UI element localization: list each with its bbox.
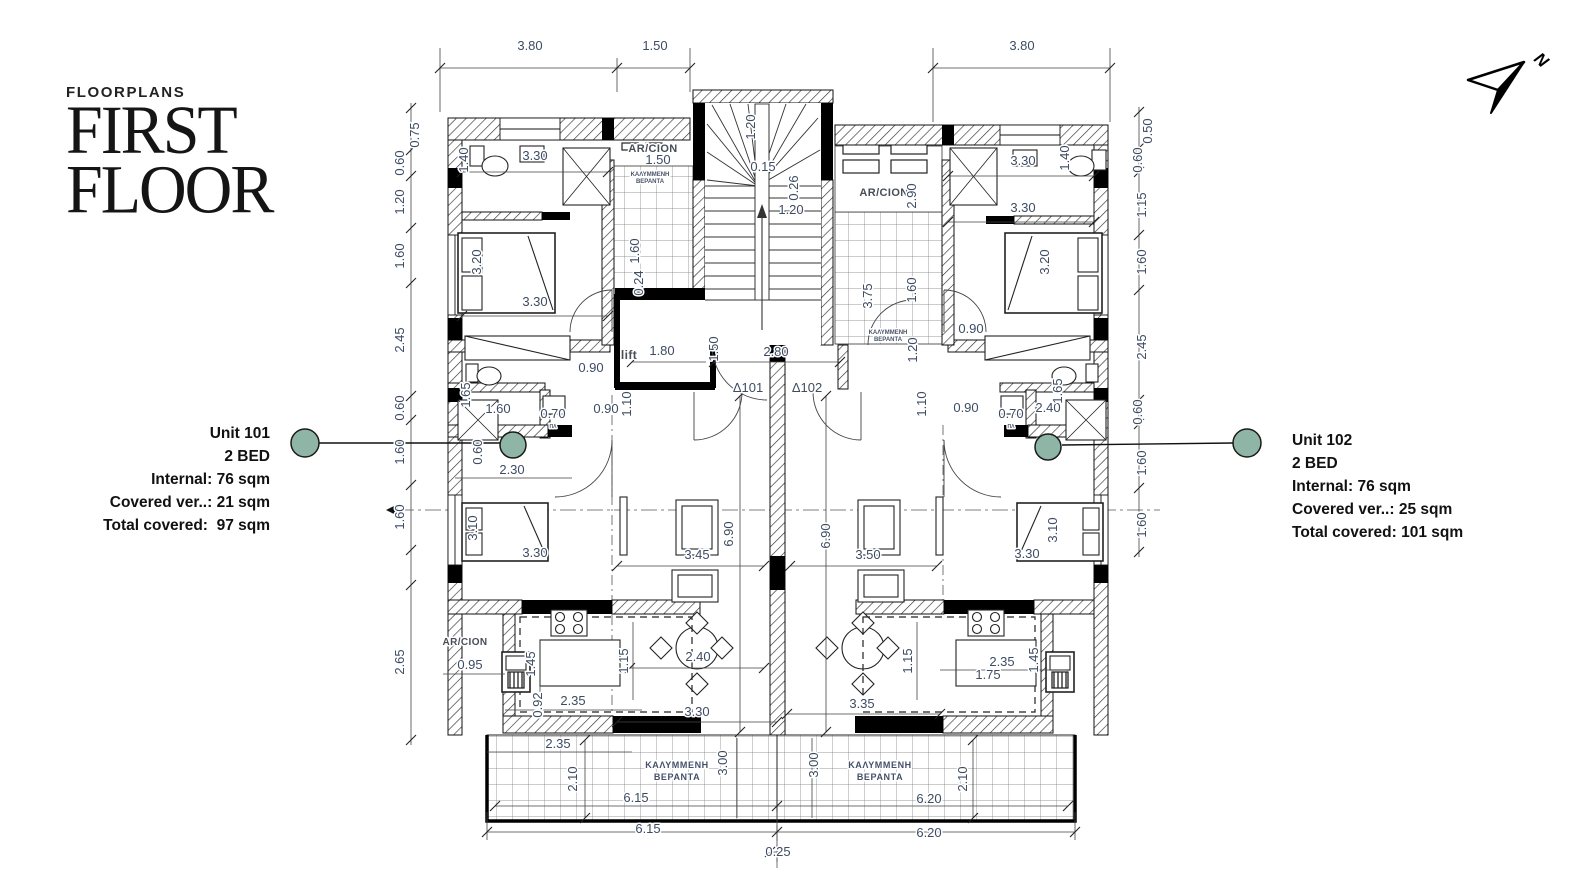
dimension-label: 3.35 (849, 696, 874, 711)
dimension-label: 1.60 (392, 243, 407, 268)
unit-internal: Internal: 76 sqm (20, 468, 270, 491)
dimension-label: 6.90 (818, 523, 833, 548)
unit-101-plan-marker (500, 432, 526, 458)
unit-internal: Internal: 76 sqm (1292, 475, 1552, 498)
room-label: ΒΕΡΑΝΤΑ (874, 337, 903, 343)
room-label: ΚΑΛΥΜΜΕΝΗ (869, 330, 908, 336)
dimension-label: 3.20 (469, 249, 484, 274)
dimension-label: 6.20 (916, 791, 941, 806)
dimension-label: 6.90 (721, 521, 736, 546)
dimension-label: 1.60 (1134, 249, 1149, 274)
dimension-label: 1.20 (778, 202, 803, 217)
dimension-label: 1.20 (743, 114, 758, 139)
dimension-label: 0.60 (470, 439, 485, 464)
dimension-label: 0.90 (578, 360, 603, 375)
page-title: FIRST FLOOR (66, 101, 272, 220)
dimension-label: 0.92 (530, 692, 545, 717)
dimension-label: 3.80 (517, 38, 542, 53)
stairs (705, 103, 821, 345)
dimension-label: 6.15 (623, 790, 648, 805)
dimension-label: 1.60 (904, 277, 919, 302)
dimension-label: 2.10 (565, 766, 580, 791)
dimension-label: 1.45 (1026, 647, 1041, 672)
dimension-label: 3.10 (1045, 517, 1060, 542)
dimension-label: 0.95 (457, 657, 482, 672)
dimension-label: 1.10 (914, 391, 929, 416)
dimension-label: 3.30 (684, 704, 709, 719)
dimension-label: 3.30 (1010, 153, 1035, 168)
dimension-label: 1.50 (645, 152, 670, 167)
dimension-label: 2.10 (955, 766, 970, 791)
room-label: AR/CION (442, 637, 487, 648)
dimension-label: 0.60 (392, 395, 407, 420)
unit-101-marker (291, 429, 319, 457)
dimension-label: 1.15 (900, 648, 915, 673)
dimension-label: 1.10 (619, 391, 634, 416)
dimension-label: 1.60 (392, 504, 407, 529)
room-label: ΚΑΛΥΜΜΕΝΗ (631, 172, 670, 178)
unit-102-plan-marker (1035, 434, 1061, 460)
dimension-label: 0.70 (998, 406, 1023, 421)
room-label: ΒΕΡΑΝΤΑ (857, 772, 903, 782)
dimension-label: 0.90 (958, 321, 983, 336)
dimension-label: 3.30 (522, 148, 547, 163)
dimension-label: 1.60 (1134, 512, 1149, 537)
dimension-label: 0.26 (786, 175, 801, 200)
dimension-label: 0.50 (1140, 118, 1155, 143)
dimension-label: 2.45 (392, 327, 407, 352)
room-label: AR/CION (859, 187, 908, 199)
dimension-label: 0.60 (1130, 399, 1145, 424)
dimension-label: 1.20 (392, 189, 407, 214)
room-label: ΒΕΡΑΝΤΑ (654, 772, 700, 782)
unit-102-card: Unit 102 2 BED Internal: 76 sqm Covered … (1292, 429, 1552, 544)
bed (1005, 233, 1102, 313)
dimension-label: 1.40 (1057, 145, 1072, 170)
dimension-label: 0.75 (407, 122, 422, 147)
dimension-label: 3.30 (1014, 546, 1039, 561)
dimension-label: 2.65 (392, 649, 407, 674)
dimension-label: 1.60 (627, 238, 642, 263)
dimension-label: 1.65 (458, 382, 473, 407)
dimension-label: 1.20 (905, 337, 920, 362)
room-label: ΒΕΡΑΝΤΑ (636, 179, 665, 185)
unit-101-card: Unit 101 2 BED Internal: 76 sqm Covered … (20, 422, 270, 537)
dimension-label: 6.20 (916, 825, 941, 840)
dimension-label: 1.75 (975, 667, 1000, 682)
unit-total: Total covered: 97 sqm (20, 514, 270, 537)
dimension-label: 1.40 (456, 147, 471, 172)
dimension-label: 2.45 (1134, 334, 1149, 359)
unit-beds: 2 BED (1292, 452, 1552, 475)
dimension-label: 2.40 (685, 649, 710, 664)
dimension-label: 1.15 (616, 648, 631, 673)
dimension-label: 2.30 (499, 462, 524, 477)
dimension-label: 1.15 (1134, 192, 1149, 217)
unit-covered: Covered ver..: 25 sqm (1292, 498, 1552, 521)
north-label: N (1530, 49, 1552, 72)
north-arrow-icon: N (1468, 49, 1553, 113)
room-label: ΠΛ (1008, 424, 1016, 430)
dimension-label: 2.90 (904, 183, 919, 208)
dimension-label: 3.10 (465, 515, 480, 540)
dimension-label: 1.60 (392, 439, 407, 464)
dimension-label: 3.80 (1009, 38, 1034, 53)
dimension-label: 3.30 (522, 545, 547, 560)
dimension-label: 1.60 (1134, 450, 1149, 475)
dimension-label: 2.80 (763, 344, 788, 359)
kitchen (502, 610, 1074, 712)
page-header: FLOORPLANS FIRST FLOOR (66, 84, 272, 215)
room-label: lift (621, 348, 637, 362)
dimension-label: 0.90 (953, 400, 978, 415)
dimension-label: 0.25 (765, 844, 790, 859)
dimension-label: 0.60 (1130, 147, 1145, 172)
dimension-label: 0.70 (540, 406, 565, 421)
unit-name: Unit 102 (1292, 429, 1552, 452)
dimension-label: 3.30 (522, 294, 547, 309)
floorplan-page: N 3.801.503.800.750.601.201.602.450.601.… (0, 0, 1576, 888)
unit-beds: 2 BED (20, 445, 270, 468)
unit-total: Total covered: 101 sqm (1292, 521, 1552, 544)
unit-name: Unit 101 (20, 422, 270, 445)
unit-covered: Covered ver..: 21 sqm (20, 491, 270, 514)
dimension-label: 2.35 (560, 693, 585, 708)
dimension-label: Δ102 (792, 380, 822, 395)
dimension-label: 3.45 (684, 547, 709, 562)
dimension-label: 3.75 (860, 283, 875, 308)
room-label: ΚΑΛΥΜΜΕΝΗ (848, 760, 912, 770)
dimension-label: 1.80 (649, 343, 674, 358)
unit-102-marker (1233, 429, 1261, 457)
dimension-label: 1.60 (485, 401, 510, 416)
dimension-label: 0.60 (392, 150, 407, 175)
dimension-label: 3.00 (806, 752, 821, 777)
dimension-label: 3.00 (715, 750, 730, 775)
dimension-label: 0.15 (750, 159, 775, 174)
room-label: ΠΛ (550, 424, 558, 430)
dimension-label: 0.90 (593, 401, 618, 416)
dimension-label: 1.50 (642, 38, 667, 53)
lift (617, 297, 713, 385)
dimension-label: 0.24 (631, 270, 646, 295)
dimension-label: 3.20 (1037, 249, 1052, 274)
dimension-label: 3.50 (855, 547, 880, 562)
dimension-label: 1.50 (706, 336, 721, 361)
dimension-label: Δ101 (733, 380, 763, 395)
dimension-label: 1.45 (523, 651, 538, 676)
dimension-label: 1.65 (1050, 378, 1065, 403)
dimension-label: 2.35 (545, 736, 570, 751)
room-label: ΚΑΛΥΜΜΕΝΗ (645, 760, 709, 770)
dimension-label: 3.30 (1010, 200, 1035, 215)
dimension-label: 6.15 (635, 821, 660, 836)
